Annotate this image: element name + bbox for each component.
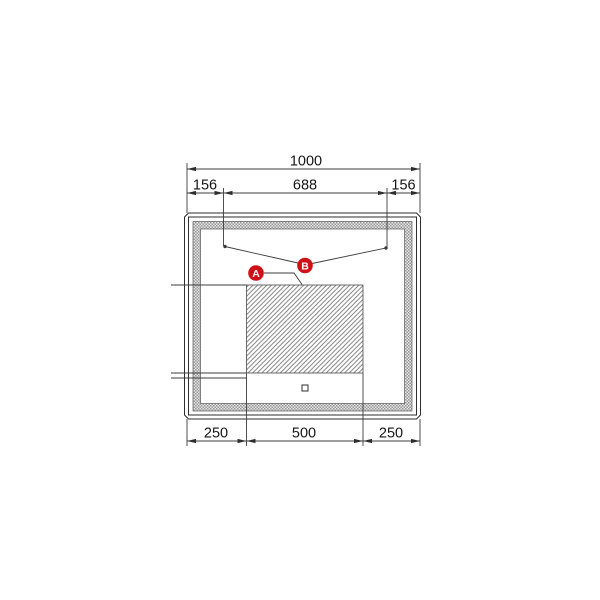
technical-drawing-canvas: 1000 156 688 156 250 500 250 xyxy=(0,0,600,600)
touch-switch-square xyxy=(302,385,308,391)
hatched-zone xyxy=(247,285,364,373)
dimension-250-500-250: 250 500 250 xyxy=(187,426,420,444)
arrowhead xyxy=(354,439,363,443)
dim-value-688: 688 xyxy=(293,178,317,194)
callout-a-marker: A xyxy=(248,265,264,281)
leader-b-right-dot xyxy=(384,246,387,249)
arrowhead xyxy=(378,191,387,195)
dim-value-1000: 1000 xyxy=(290,154,322,170)
callout-a-letter: A xyxy=(252,268,260,280)
dim-value-500: 500 xyxy=(292,426,316,442)
callout-b-letter: B xyxy=(301,260,309,272)
arrowhead xyxy=(187,439,196,443)
arrowhead xyxy=(411,439,420,443)
dim-value-156-right: 156 xyxy=(391,178,415,194)
leader-b-left-dot xyxy=(223,245,226,248)
arrowhead xyxy=(187,167,196,171)
arrowhead xyxy=(247,439,256,443)
arrowhead xyxy=(238,439,247,443)
callout-b-marker: B xyxy=(297,258,313,274)
dim-value-250-right: 250 xyxy=(379,426,403,442)
dimension-1000: 1000 xyxy=(187,154,420,172)
dim-value-156-left: 156 xyxy=(193,178,217,194)
arrowhead xyxy=(363,439,372,443)
dim-value-250-left: 250 xyxy=(204,426,228,442)
arrowhead xyxy=(411,167,420,171)
arrowhead xyxy=(224,191,233,195)
dimension-156-688-156: 156 688 156 xyxy=(187,178,420,196)
mirror-dimension-drawing: 1000 156 688 156 250 500 250 xyxy=(0,0,600,600)
